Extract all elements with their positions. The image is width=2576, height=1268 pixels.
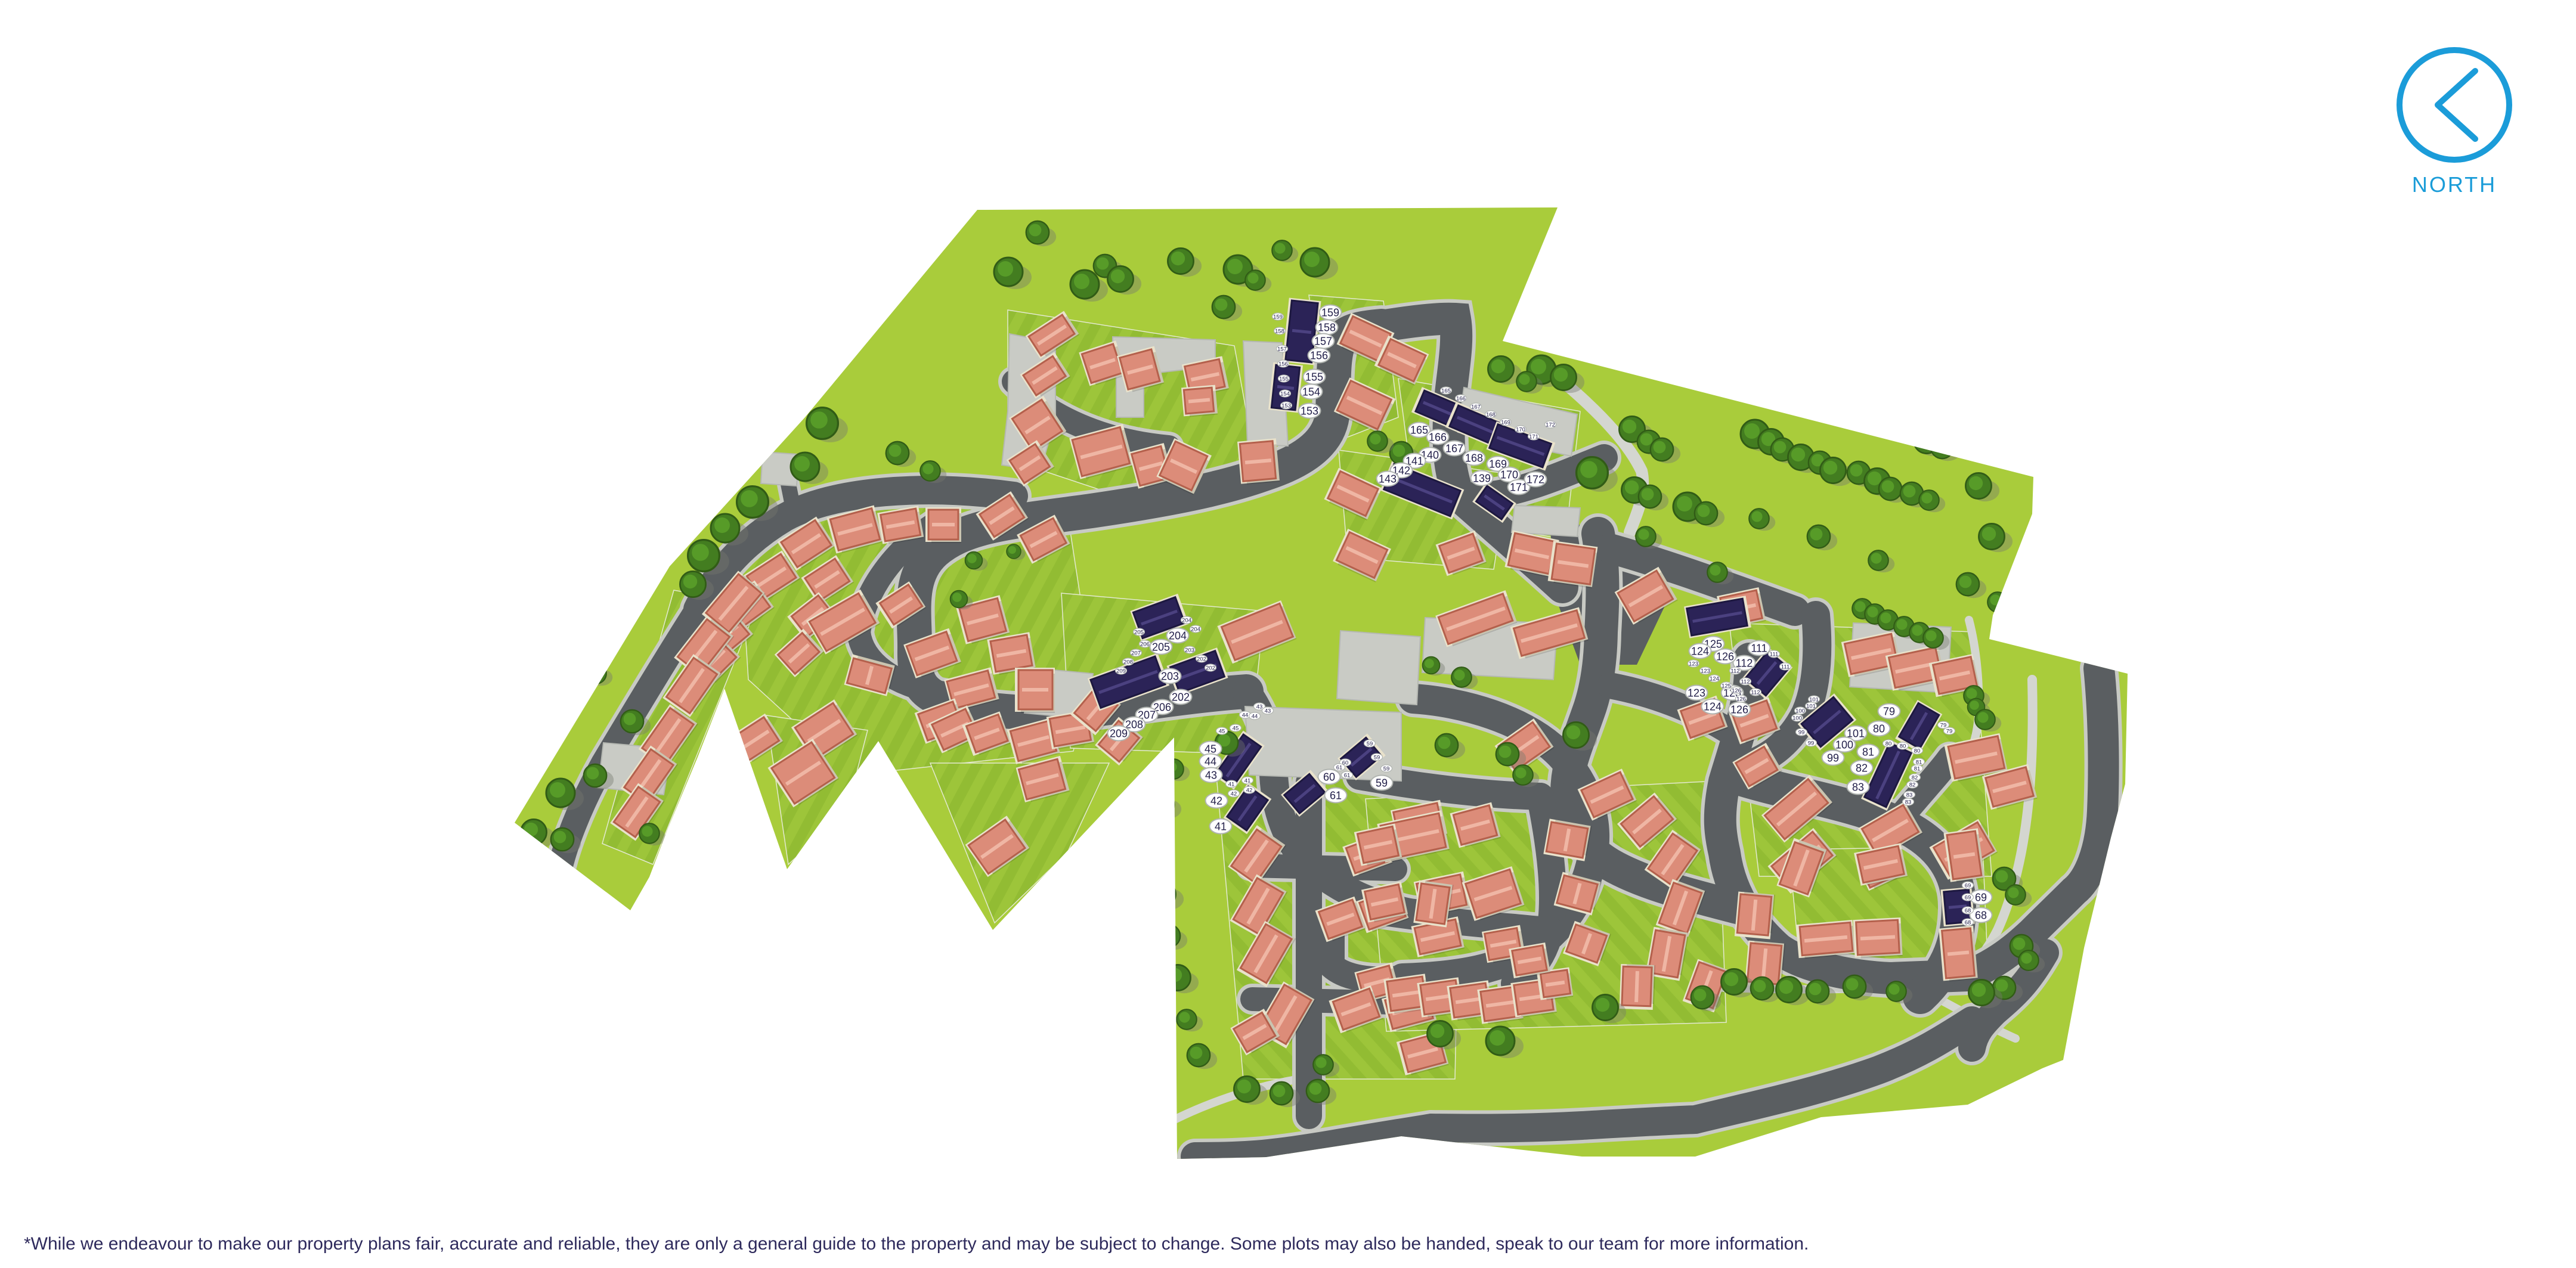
svg-text:172: 172 xyxy=(1527,474,1544,486)
svg-text:205: 205 xyxy=(1134,630,1144,636)
svg-text:99: 99 xyxy=(1798,730,1805,736)
svg-text:99: 99 xyxy=(1808,740,1815,747)
svg-text:60: 60 xyxy=(1323,771,1335,783)
svg-text:61: 61 xyxy=(1344,773,1351,779)
svg-text:204: 204 xyxy=(1182,618,1191,624)
svg-text:124: 124 xyxy=(1704,701,1722,713)
svg-text:159: 159 xyxy=(1273,314,1283,321)
svg-text:59: 59 xyxy=(1374,755,1380,761)
svg-text:59: 59 xyxy=(1376,777,1388,789)
svg-text:61: 61 xyxy=(1330,790,1342,802)
svg-text:80: 80 xyxy=(1873,723,1885,735)
svg-text:83: 83 xyxy=(1906,792,1913,799)
svg-text:165: 165 xyxy=(1410,424,1428,436)
svg-text:205: 205 xyxy=(1152,641,1170,653)
svg-text:100: 100 xyxy=(1835,739,1853,751)
svg-text:202: 202 xyxy=(1197,656,1206,663)
svg-text:44: 44 xyxy=(1205,756,1216,768)
svg-text:153: 153 xyxy=(1301,405,1318,417)
svg-text:172: 172 xyxy=(1546,422,1555,429)
svg-text:111: 111 xyxy=(1751,643,1767,655)
svg-text:126: 126 xyxy=(1736,696,1746,703)
svg-text:41: 41 xyxy=(1228,782,1235,788)
svg-text:43: 43 xyxy=(1205,770,1217,782)
svg-text:139: 139 xyxy=(1473,473,1491,485)
svg-text:69: 69 xyxy=(1965,883,1971,889)
svg-text:155: 155 xyxy=(1305,371,1323,383)
svg-text:82: 82 xyxy=(1912,775,1918,782)
svg-text:83: 83 xyxy=(1905,799,1912,806)
svg-text:126: 126 xyxy=(1732,688,1741,695)
svg-text:125: 125 xyxy=(1722,683,1731,690)
svg-text:44: 44 xyxy=(1252,714,1258,720)
svg-text:124: 124 xyxy=(1691,646,1709,658)
svg-text:209: 209 xyxy=(1110,728,1128,740)
svg-text:68: 68 xyxy=(1975,910,1987,922)
svg-text:82: 82 xyxy=(1856,762,1868,774)
svg-text:143: 143 xyxy=(1379,473,1397,485)
svg-text:166: 166 xyxy=(1456,396,1466,402)
svg-text:NORTH: NORTH xyxy=(2412,172,2497,197)
svg-text:79: 79 xyxy=(1883,706,1895,718)
svg-text:101: 101 xyxy=(1806,703,1816,710)
svg-text:169: 169 xyxy=(1501,420,1510,426)
svg-text:42: 42 xyxy=(1210,795,1222,807)
svg-text:41: 41 xyxy=(1215,821,1227,833)
svg-text:158: 158 xyxy=(1318,322,1336,334)
svg-text:100: 100 xyxy=(1792,715,1802,722)
svg-text:204: 204 xyxy=(1169,630,1187,642)
svg-text:68: 68 xyxy=(1965,908,1971,914)
svg-text:165: 165 xyxy=(1441,388,1451,395)
svg-text:112: 112 xyxy=(1730,668,1739,675)
svg-text:100: 100 xyxy=(1795,708,1805,715)
svg-text:61: 61 xyxy=(1336,765,1343,771)
svg-text:69: 69 xyxy=(1975,892,1987,904)
svg-text:68: 68 xyxy=(1965,920,1971,926)
svg-text:99: 99 xyxy=(1827,752,1839,764)
svg-text:171: 171 xyxy=(1529,434,1538,441)
svg-text:111: 111 xyxy=(1781,664,1789,671)
svg-text:126: 126 xyxy=(1730,704,1748,716)
svg-text:209: 209 xyxy=(1116,668,1126,675)
svg-text:157: 157 xyxy=(1314,336,1332,348)
svg-text:154: 154 xyxy=(1280,391,1290,398)
svg-text:80: 80 xyxy=(1900,743,1906,750)
svg-text:81: 81 xyxy=(1914,766,1921,773)
svg-text:111: 111 xyxy=(1770,652,1778,658)
svg-text:207: 207 xyxy=(1131,650,1141,657)
svg-text:157: 157 xyxy=(1277,346,1287,353)
svg-text:126: 126 xyxy=(1716,651,1734,663)
svg-text:168: 168 xyxy=(1465,452,1483,464)
svg-text:123: 123 xyxy=(1689,661,1698,668)
svg-text:112: 112 xyxy=(1751,690,1760,696)
svg-text:42: 42 xyxy=(1246,788,1253,794)
svg-text:79: 79 xyxy=(1946,728,1953,735)
svg-text:81: 81 xyxy=(1862,746,1874,758)
svg-text:170: 170 xyxy=(1500,469,1518,481)
svg-text:80: 80 xyxy=(1914,748,1921,755)
svg-text:155: 155 xyxy=(1279,376,1289,383)
svg-text:43: 43 xyxy=(1256,704,1263,711)
svg-text:44: 44 xyxy=(1242,712,1249,719)
svg-text:202: 202 xyxy=(1206,665,1215,672)
svg-text:124: 124 xyxy=(1710,676,1719,683)
svg-text:59: 59 xyxy=(1367,741,1373,748)
svg-text:59: 59 xyxy=(1383,766,1390,773)
svg-text:168: 168 xyxy=(1486,412,1496,418)
svg-text:123: 123 xyxy=(1688,687,1705,699)
svg-text:112: 112 xyxy=(1741,679,1750,686)
svg-text:153: 153 xyxy=(1281,403,1291,410)
svg-text:83: 83 xyxy=(1852,782,1864,793)
svg-text:123: 123 xyxy=(1701,668,1710,675)
svg-text:45: 45 xyxy=(1219,728,1225,735)
svg-text:41: 41 xyxy=(1244,778,1251,785)
svg-text:203: 203 xyxy=(1161,671,1179,683)
svg-text:204: 204 xyxy=(1191,627,1200,633)
svg-text:43: 43 xyxy=(1265,708,1271,715)
svg-text:166: 166 xyxy=(1429,432,1447,444)
svg-text:154: 154 xyxy=(1302,386,1320,398)
svg-text:206: 206 xyxy=(1140,641,1150,648)
svg-text:202: 202 xyxy=(1172,692,1190,703)
svg-text:159: 159 xyxy=(1321,307,1339,319)
svg-text:203: 203 xyxy=(1185,647,1194,654)
svg-text:42: 42 xyxy=(1231,791,1237,798)
svg-text:167: 167 xyxy=(1471,404,1481,411)
svg-text:171: 171 xyxy=(1510,482,1528,494)
svg-text:45: 45 xyxy=(1233,726,1239,732)
svg-text:80: 80 xyxy=(1885,741,1892,748)
svg-text:156: 156 xyxy=(1310,350,1328,362)
svg-text:*While we endeavour to make ou: *While we endeavour to make our property… xyxy=(24,1234,1809,1254)
svg-text:158: 158 xyxy=(1275,328,1284,335)
svg-text:170: 170 xyxy=(1516,427,1525,433)
svg-text:208: 208 xyxy=(1123,659,1133,666)
svg-text:82: 82 xyxy=(1909,782,1916,789)
svg-text:69: 69 xyxy=(1965,895,1971,901)
svg-text:156: 156 xyxy=(1278,361,1288,368)
svg-text:167: 167 xyxy=(1445,443,1463,455)
